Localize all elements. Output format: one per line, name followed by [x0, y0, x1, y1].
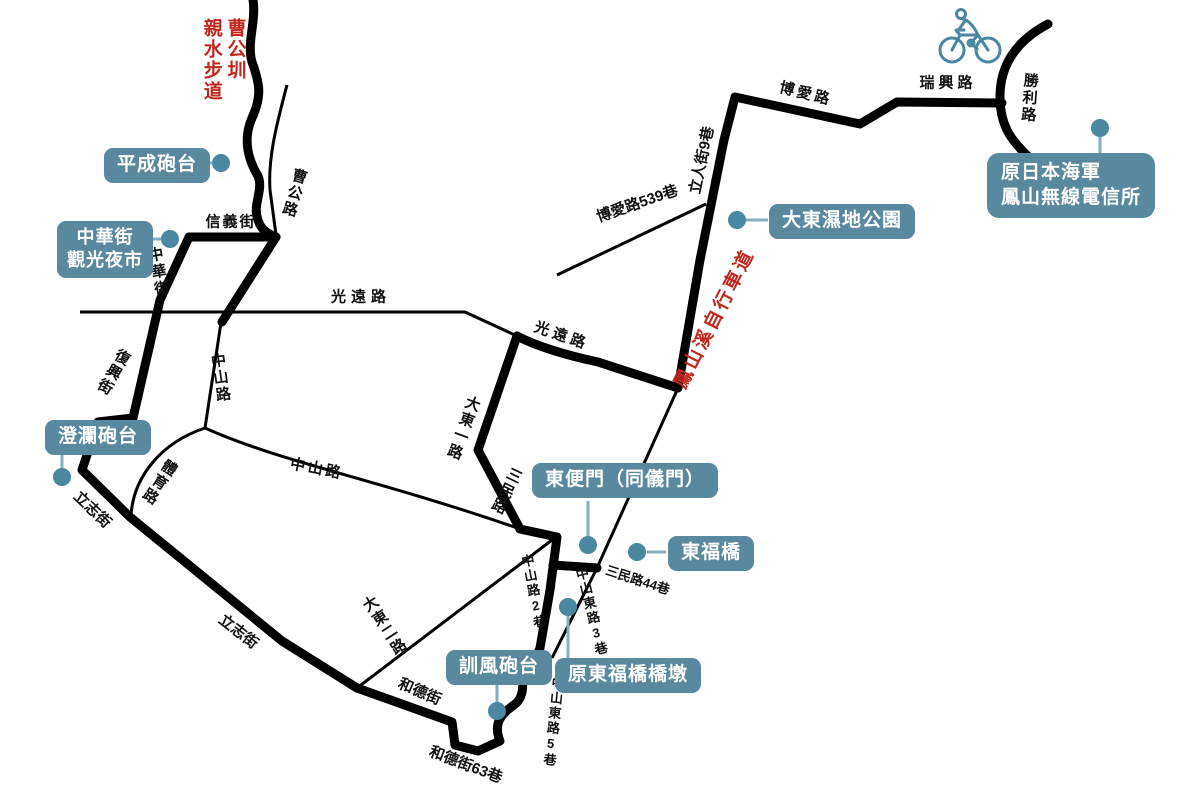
fengshan-bike-route-map: 曹公圳 親水步道 鳳山溪自行車道 曹公路 信義街 中華街 復興街 光遠路 光遠路… — [0, 0, 1200, 800]
road-label: 信義街 — [205, 211, 256, 232]
poi-dot — [1091, 119, 1109, 137]
poi-badge-line: 鳳山無線電信所 — [1001, 186, 1141, 211]
canal-walkway-line1: 曹公圳 — [223, 18, 247, 102]
poi-badge-east-gate: 東便門（同儀門） — [532, 463, 718, 498]
road-zhongshan-ew — [205, 428, 520, 529]
road-label: 光遠路 — [331, 286, 391, 307]
road-label: 瑞興路 — [919, 72, 976, 93]
poi-dots — [53, 119, 1109, 720]
poi-dot — [579, 536, 597, 554]
poi-badge-pingcheng-battery: 平成砲台 — [104, 148, 210, 183]
route-canal-south — [222, 237, 276, 322]
canal-walkway-label: 曹公圳 親水步道 — [199, 18, 247, 102]
poi-dot — [488, 702, 506, 720]
poi-dot — [212, 154, 230, 172]
road-riverside — [552, 388, 678, 658]
poi-badge-line: 觀光夜市 — [67, 249, 143, 272]
poi-dot — [559, 598, 577, 616]
poi-badge-zhonghua-night-market: 中華街 觀光夜市 — [57, 221, 153, 278]
poi-badge-old-bridge-pier: 原東福橋橋墩 — [555, 658, 701, 693]
road-label: 勝利路 — [1017, 72, 1042, 124]
poi-dot — [53, 468, 71, 486]
poi-badge-line: 原日本海軍 — [1001, 161, 1141, 186]
route-guangyuan-boai — [517, 97, 1002, 388]
poi-badge-dadong-wetland-park: 大東濕地公園 — [769, 204, 915, 239]
poi-dot — [628, 543, 646, 561]
poi-badge-dongfu-bridge: 東福橋 — [668, 536, 754, 571]
poi-badge-line: 中華街 — [67, 226, 143, 249]
poi-badge-xunfeng-battery: 訓風砲台 — [446, 650, 552, 685]
canal-walkway-line2: 親水步道 — [199, 18, 223, 102]
poi-dot — [728, 211, 746, 229]
poi-badge-chenglan-battery: 澄瀾砲台 — [45, 420, 151, 455]
cyclist-icon — [940, 10, 1000, 63]
poi-badge-navy-radio-station: 原日本海軍 鳳山無線電信所 — [987, 153, 1155, 218]
road-guangyuan-west — [80, 312, 517, 336]
